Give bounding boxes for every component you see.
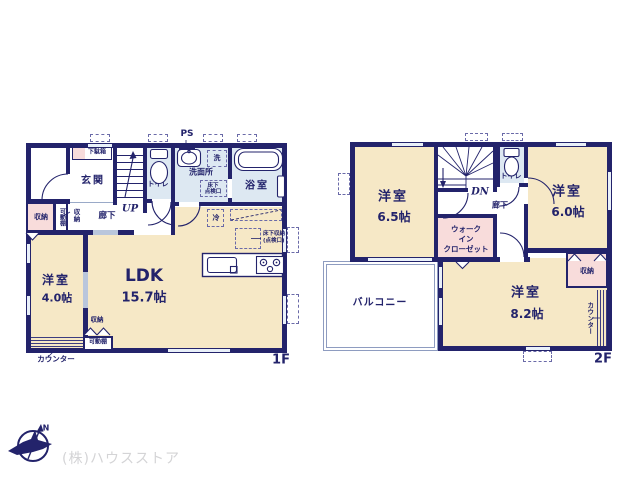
counter-1f-label: カウンター <box>37 356 75 365</box>
floor-2f-label: 2F <box>594 353 612 368</box>
range-hood-box <box>230 209 282 221</box>
underfloor-storage-label-l1: 床下収納 <box>263 231 285 237</box>
window <box>26 296 31 315</box>
room60-size: 6.0帖 <box>551 206 584 220</box>
window <box>556 142 586 147</box>
western-room-4-size: 4.0帖 <box>42 293 73 306</box>
sliding-door <box>93 230 118 235</box>
room65-name: 洋室 <box>378 191 408 206</box>
front-door-arc <box>42 174 68 200</box>
floorplan-canvas: 下駄箱 玄関 トイレ PS 洗 洗面所 床下 点検口 浴室 UP 収納 可動棚 … <box>0 0 640 480</box>
room65-size: 6.5帖 <box>377 211 410 225</box>
ldk-floor-main <box>88 235 282 348</box>
toilet-1f-door-arc <box>148 202 171 225</box>
window <box>168 348 230 353</box>
movable-shelf-left-label: 可動棚 <box>58 208 65 226</box>
ldk-name: LDK <box>125 267 163 287</box>
wall <box>118 230 134 235</box>
window <box>392 142 423 147</box>
room82-name: 洋室 <box>511 287 541 302</box>
washroom-door-opening <box>179 202 199 206</box>
storage-bottom-label: 収納 <box>91 316 104 323</box>
toilet-door-opening <box>152 199 171 203</box>
hallway-1f-label: 廊下 <box>98 212 115 222</box>
ldk-size: 15.7帖 <box>121 292 166 307</box>
wall <box>434 142 438 262</box>
window <box>26 244 31 263</box>
wall <box>26 348 287 353</box>
bath-door-opening <box>228 179 232 198</box>
wic-label-l3: クローゼット <box>444 246 489 255</box>
room60-name: 洋室 <box>552 186 582 201</box>
washer-label: 洗 <box>214 154 221 162</box>
stairs-2f-arrow <box>440 168 446 188</box>
up-label: UP <box>122 203 138 215</box>
room82-door-arc <box>500 233 524 257</box>
underfloor-check-label-l2: 点検口 <box>205 189 222 195</box>
shutter-box <box>148 134 168 142</box>
dn-label: DN <box>471 186 489 198</box>
storage-2f-label: 収納 <box>580 267 594 275</box>
wic-label-l2: イン <box>459 236 474 245</box>
window <box>438 267 443 288</box>
wall <box>524 142 528 178</box>
wall <box>171 143 175 204</box>
wall <box>350 142 355 262</box>
shutter-box <box>523 351 552 362</box>
underfloor-storage-label-l2: (点検口) <box>263 238 285 244</box>
room82-size: 8.2帖 <box>510 308 543 322</box>
ps-shaft <box>179 146 195 152</box>
counter-hatch-2f <box>597 290 607 346</box>
balcony-label: バルコニー <box>353 297 408 309</box>
wic-label-l1: ウォーク <box>451 226 481 235</box>
shutter-box <box>502 133 523 141</box>
entrance-label: 玄関 <box>81 175 105 187</box>
entrance-step-line <box>70 202 113 203</box>
hallway-2f-label: 廊下 <box>492 200 508 209</box>
shutter-box <box>338 173 350 195</box>
window <box>607 172 612 210</box>
movable-shelf-bottom-label: 可動棚 <box>89 340 107 347</box>
western-room-4-name: 洋室 <box>42 274 70 288</box>
wall <box>171 204 175 235</box>
underfloor-storage-box <box>235 228 261 249</box>
company-name: (株)ハウスストア <box>62 451 180 467</box>
toilet-1f-floor <box>147 148 171 200</box>
bath-floor <box>232 148 282 202</box>
front-door-opening <box>66 174 70 200</box>
counter-hatch-1f <box>31 337 83 348</box>
shutter-box <box>203 134 223 142</box>
bath-label: 浴室 <box>245 180 269 192</box>
shutter-box <box>465 133 488 141</box>
toilet-2f-label: トイレ <box>501 172 522 180</box>
counter-2f-label: カウンター <box>585 302 592 335</box>
room82-door-opening <box>500 257 524 262</box>
fridge-label: 冷 <box>213 214 220 222</box>
shutter-box <box>287 227 299 253</box>
sliding-door <box>83 272 88 308</box>
floor-1f-label: 1F <box>272 354 290 369</box>
wall <box>113 143 117 205</box>
window <box>368 257 432 262</box>
stairs-2f-fan <box>438 147 493 192</box>
washroom-label: 洗面所 <box>189 167 213 176</box>
wall <box>434 214 497 218</box>
compass-north-label: N <box>43 423 50 432</box>
shutter-box <box>90 134 110 142</box>
wall <box>493 214 497 262</box>
toilet-2f-door-opening <box>500 183 519 187</box>
window <box>438 298 443 325</box>
wall <box>434 188 468 192</box>
stairs-1f-treads <box>117 149 143 204</box>
shutter-box <box>237 134 257 142</box>
storage-hall-label: 収納 <box>73 209 82 223</box>
storage-left-label: 収納 <box>34 213 48 221</box>
wall <box>497 142 500 187</box>
ps-label: PS <box>180 129 193 139</box>
shoe-cabinet-label: 下駄箱 <box>88 150 106 157</box>
wall <box>232 202 287 206</box>
toilet-1f-label: トイレ <box>148 180 169 188</box>
shutter-box <box>287 294 299 324</box>
wall <box>438 257 497 262</box>
